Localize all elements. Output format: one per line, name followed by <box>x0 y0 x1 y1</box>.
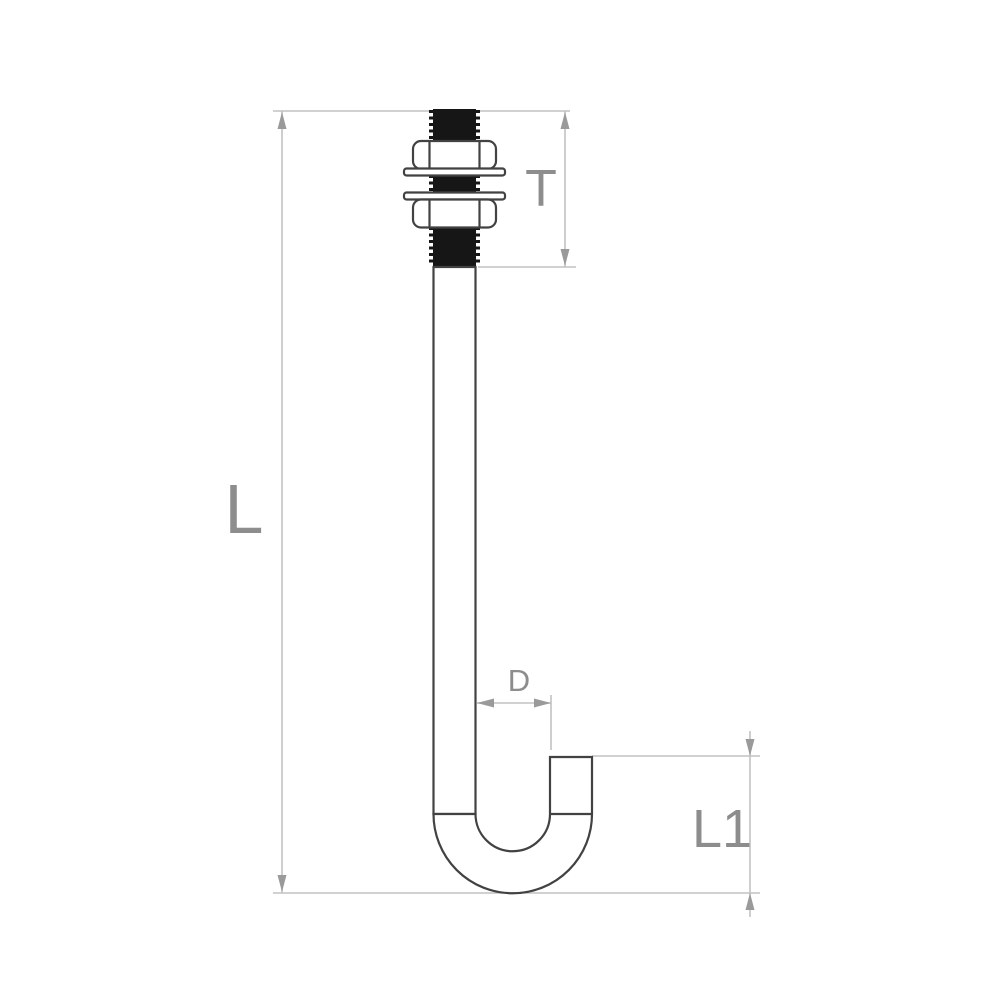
hex-nut-bottom <box>413 200 496 228</box>
label-thread-length: T <box>525 160 557 218</box>
arrow-up-icon <box>278 112 287 129</box>
arrow-left-icon <box>477 699 494 708</box>
hex-nut-top <box>413 141 496 169</box>
label-hook-length: L1 <box>692 799 752 859</box>
drawing-canvas: L T D L1 <box>0 0 1000 1000</box>
arrow-down-icon <box>278 875 287 892</box>
bolt-thread <box>433 109 476 267</box>
arrow-down-icon <box>746 739 755 756</box>
arrow-up-icon <box>561 112 570 129</box>
label-total-length: L <box>225 470 264 548</box>
arrow-up-icon <box>746 893 755 910</box>
dimension-annotations: L T D L1 <box>225 111 760 917</box>
label-rod-diameter: D <box>508 663 530 698</box>
arrow-down-icon <box>561 249 570 266</box>
bolt-shank <box>434 267 476 814</box>
j-bolt <box>404 109 592 893</box>
j-bolt-technical-drawing: L T D L1 <box>0 0 1000 1000</box>
washer-top <box>404 169 505 176</box>
arrow-right-icon <box>534 699 551 708</box>
